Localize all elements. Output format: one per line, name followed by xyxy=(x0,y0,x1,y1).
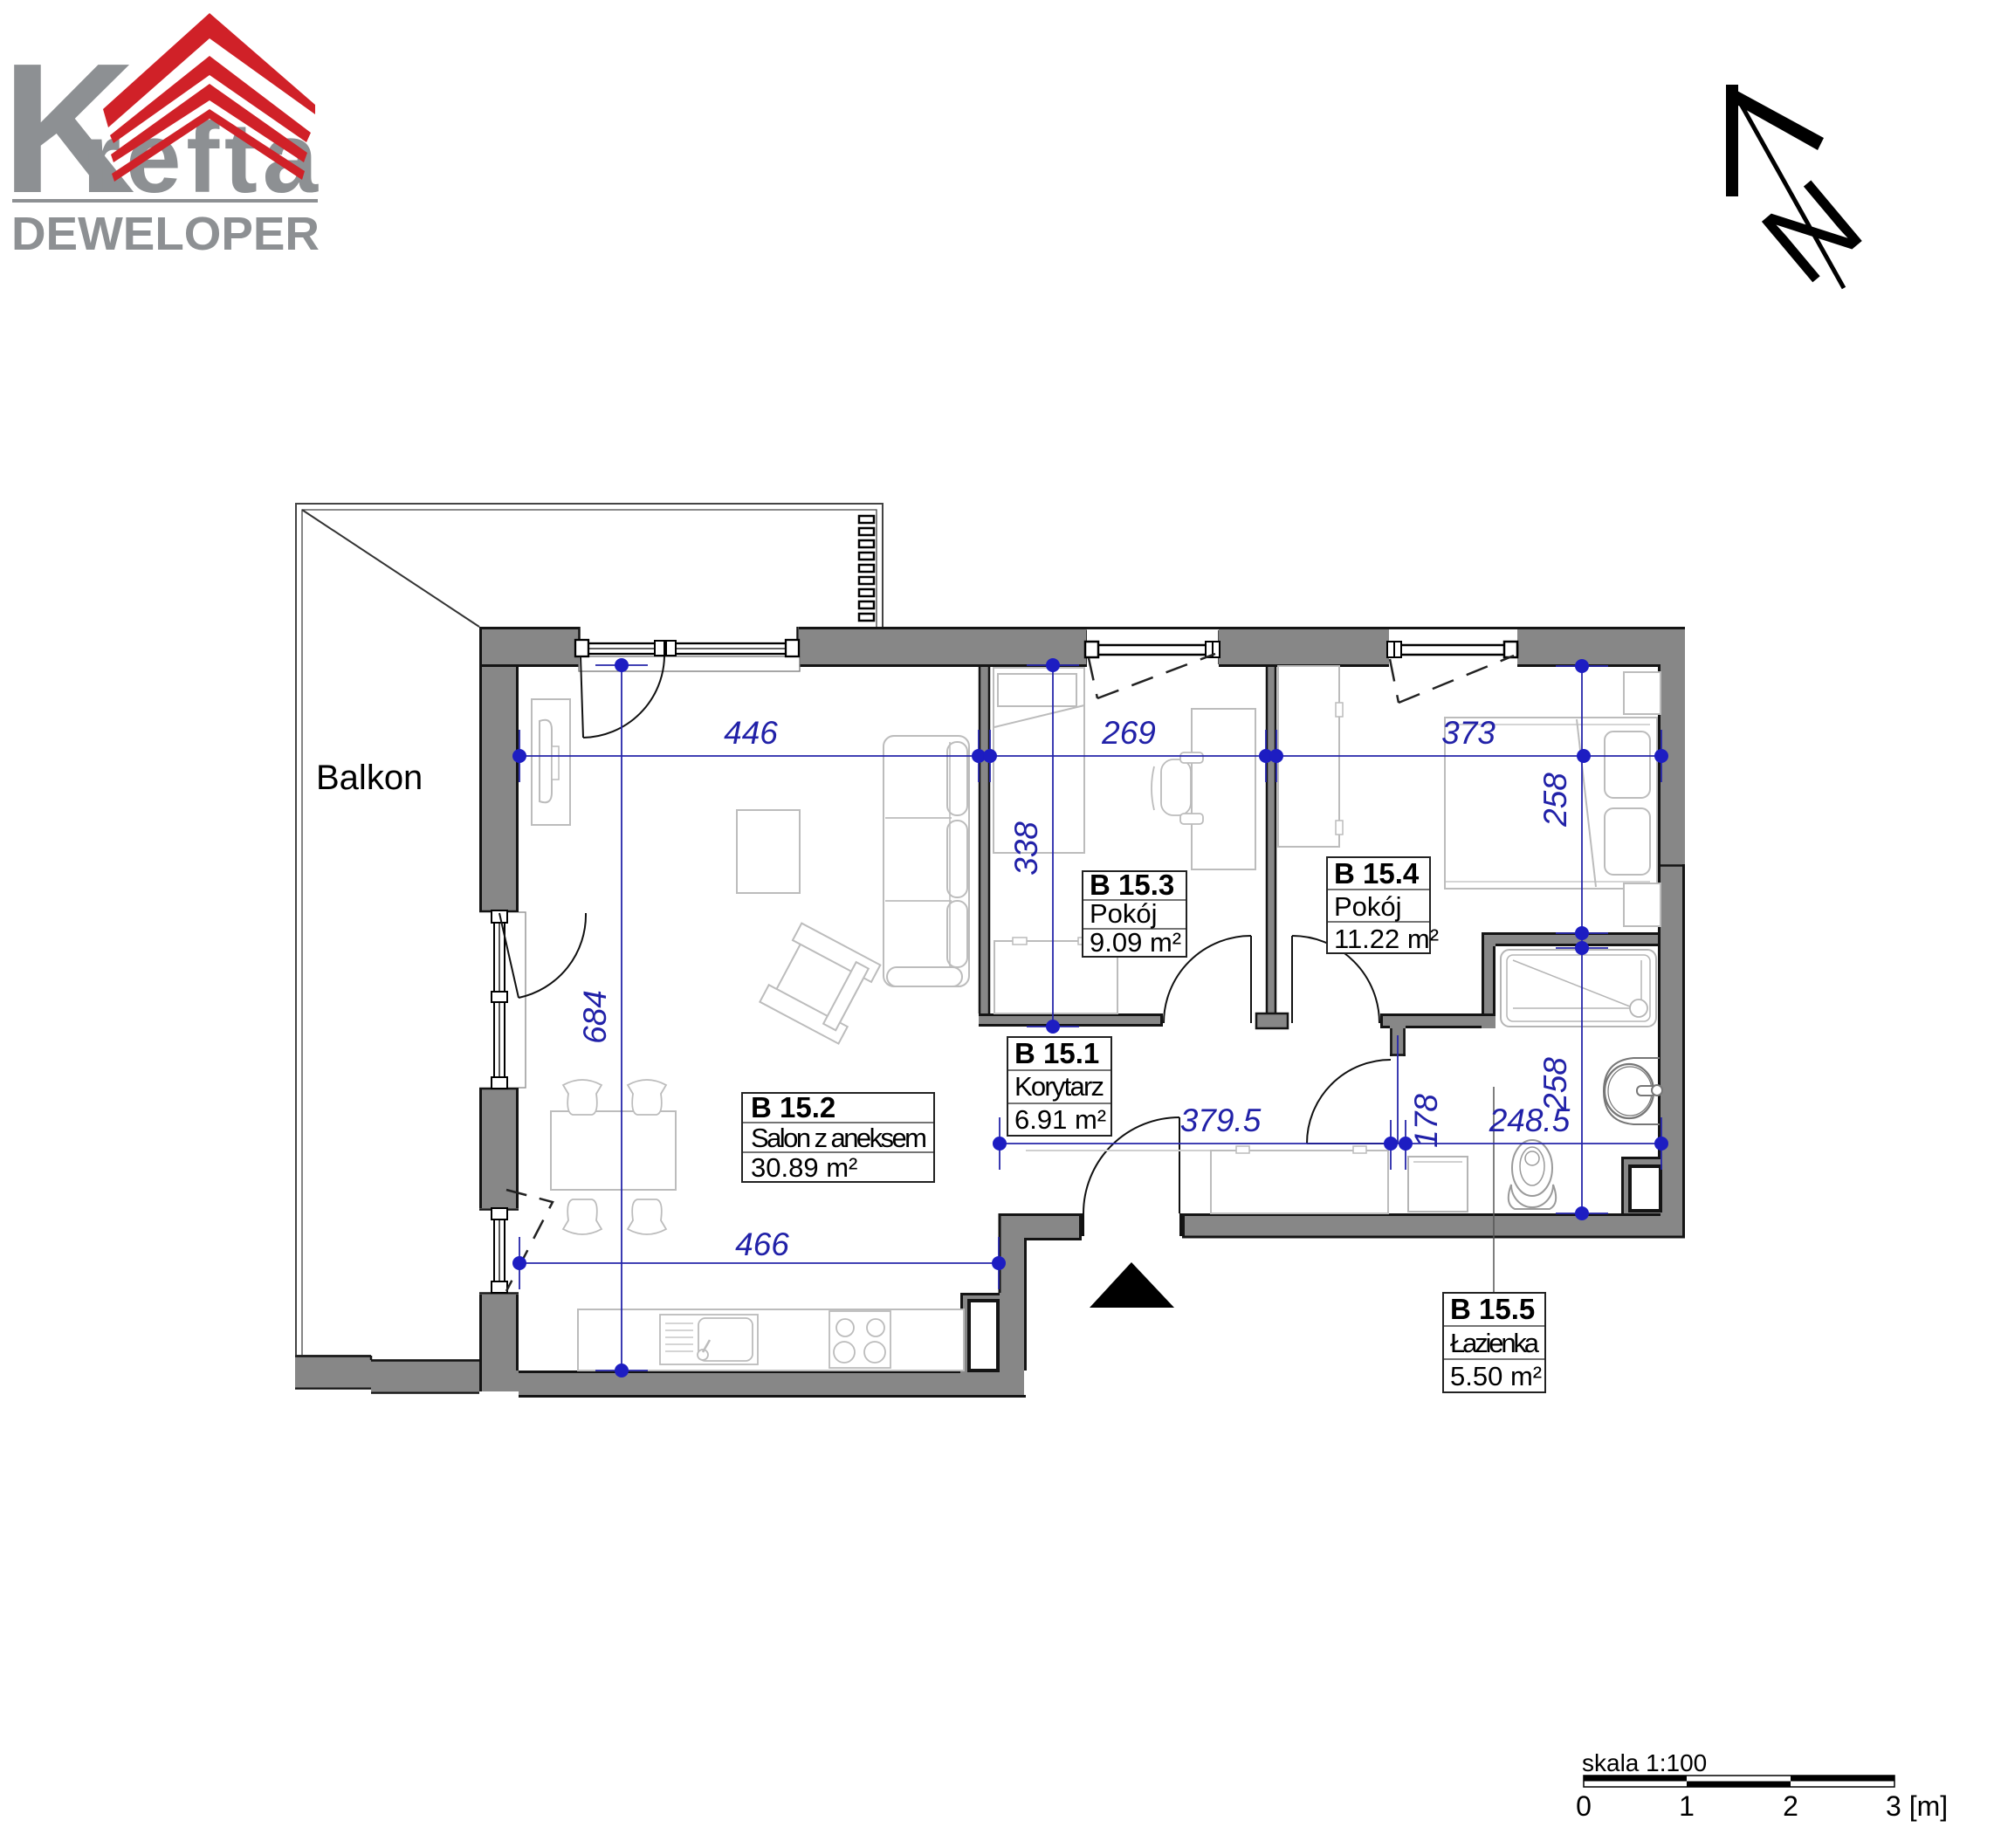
svg-text:B 15.1: B 15.1 xyxy=(1014,1037,1099,1069)
svg-text:skala 1:100: skala 1:100 xyxy=(1582,1749,1707,1776)
svg-text:Pokój: Pokój xyxy=(1334,891,1402,922)
svg-text:379.5: 379.5 xyxy=(1180,1103,1262,1138)
svg-text:6.91 m²: 6.91 m² xyxy=(1014,1104,1106,1135)
svg-text:2: 2 xyxy=(1783,1790,1798,1822)
svg-text:373: 373 xyxy=(1441,715,1495,751)
svg-text:DEWELOPER: DEWELOPER xyxy=(11,208,320,260)
svg-text:Łazienka: Łazienka xyxy=(1450,1328,1540,1358)
svg-text:Pokój: Pokój xyxy=(1090,898,1158,929)
svg-text:9.09 m²: 9.09 m² xyxy=(1090,927,1181,958)
svg-text:3 [m]: 3 [m] xyxy=(1886,1790,1948,1822)
svg-text:Korytarz: Korytarz xyxy=(1014,1071,1104,1102)
svg-text:466: 466 xyxy=(735,1226,789,1262)
svg-text:1: 1 xyxy=(1679,1790,1695,1822)
svg-text:B 15.4: B 15.4 xyxy=(1334,857,1420,890)
svg-text:11.22 m²: 11.22 m² xyxy=(1334,924,1439,954)
svg-text:338: 338 xyxy=(1008,821,1044,876)
svg-text:B 15.2: B 15.2 xyxy=(751,1091,835,1123)
svg-text:269: 269 xyxy=(1101,715,1156,751)
svg-text:B 15.5: B 15.5 xyxy=(1450,1293,1535,1325)
svg-text:Balkon: Balkon xyxy=(316,759,423,797)
svg-text:258: 258 xyxy=(1537,1057,1573,1112)
svg-text:30.89 m²: 30.89 m² xyxy=(751,1152,857,1183)
svg-text:B 15.3: B 15.3 xyxy=(1090,869,1174,901)
svg-text:Salon z aneksem: Salon z aneksem xyxy=(751,1123,927,1153)
svg-text:258: 258 xyxy=(1537,773,1573,828)
svg-text:178: 178 xyxy=(1408,1094,1444,1148)
svg-text:684: 684 xyxy=(577,990,613,1044)
svg-text:5.50 m²: 5.50 m² xyxy=(1450,1361,1542,1391)
svg-text:446: 446 xyxy=(724,715,778,751)
svg-text:0: 0 xyxy=(1576,1790,1592,1822)
